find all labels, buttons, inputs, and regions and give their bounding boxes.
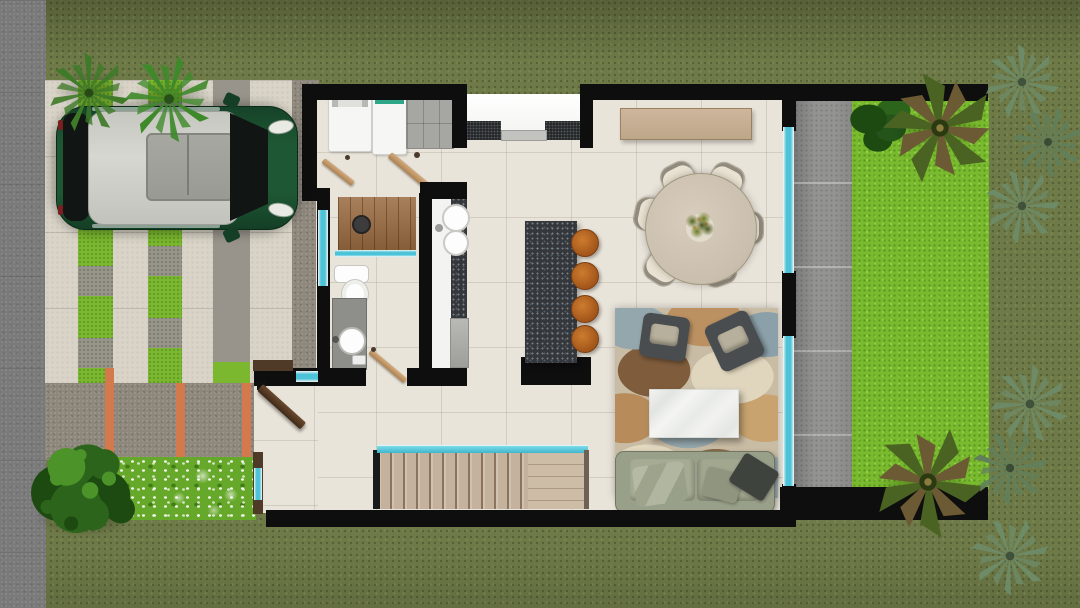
kitchen-island xyxy=(525,221,577,363)
wall-top-left xyxy=(302,84,467,100)
washing-machine xyxy=(328,96,372,152)
bathroom-glass-wall xyxy=(318,210,328,286)
sofa xyxy=(615,451,775,513)
entry-side-window xyxy=(254,468,262,500)
armchair xyxy=(638,312,691,362)
stair-glass-railing xyxy=(377,445,588,453)
doormat xyxy=(466,121,501,140)
wall-top-center xyxy=(580,84,782,100)
table-centerpiece-plant xyxy=(681,208,719,246)
cooktop-appliance-front xyxy=(450,318,469,368)
bar-stool xyxy=(571,229,599,257)
shower-drain-stool xyxy=(352,215,371,234)
car-windshield xyxy=(230,113,268,221)
doormat xyxy=(545,121,580,140)
entry-row-window xyxy=(296,371,318,382)
wall-bathroom-right xyxy=(419,193,432,386)
kitchen-faucet xyxy=(435,224,443,232)
rear-glass-wall-dining xyxy=(783,127,794,273)
stair-side-wall xyxy=(373,450,380,509)
bar-stool xyxy=(571,325,599,353)
wall-rear-pier-middle xyxy=(782,271,796,338)
kitchen-sink-bowl xyxy=(442,204,470,232)
door-handle xyxy=(414,152,420,158)
door-handle xyxy=(371,347,376,352)
vanity-faucet xyxy=(332,336,339,343)
backyard-patio xyxy=(794,98,853,488)
entry-wood-wall-cap xyxy=(253,360,293,371)
stair-treads xyxy=(377,452,528,509)
wall-rear-pier-top xyxy=(782,84,796,131)
wall-bottom-main xyxy=(266,510,786,527)
car-taillight xyxy=(58,205,63,215)
floor-plan-render xyxy=(0,0,1080,608)
armchair-pillow xyxy=(649,323,680,347)
stair-landing-edge xyxy=(584,450,589,509)
toilet-paper-holder xyxy=(352,355,366,365)
dryer xyxy=(372,96,407,155)
coffee-table xyxy=(649,389,739,438)
kitchen-sink-bowl xyxy=(443,230,469,256)
shower-wood-deck xyxy=(338,197,416,251)
wall-left xyxy=(302,84,317,201)
door-threshold xyxy=(501,130,547,141)
entry-porch-floor xyxy=(254,383,318,513)
front-garden-shrub xyxy=(24,420,142,542)
rear-glass-wall-living xyxy=(783,336,794,486)
wall-porch-left-stub xyxy=(452,95,467,148)
dining-sideboard xyxy=(620,108,752,140)
wall-porch-right-stub xyxy=(580,95,593,148)
washer-control-panel xyxy=(332,100,368,107)
laundry-cabinet xyxy=(406,96,454,149)
sofa-throw-blanket xyxy=(631,461,688,508)
walkway-orange-stripe xyxy=(176,383,185,460)
bar-stool xyxy=(571,262,599,290)
shower-glass-partition xyxy=(335,250,416,257)
vanity-round-sink xyxy=(338,327,366,355)
door-handle xyxy=(345,155,350,160)
driveway-grass-inlay xyxy=(213,362,250,385)
bar-stool xyxy=(571,295,599,323)
armchair-pillow xyxy=(716,324,750,354)
dryer-indicator-strip xyxy=(375,100,404,104)
stair-landing xyxy=(528,452,586,509)
wall-entry-row-right xyxy=(407,368,467,386)
